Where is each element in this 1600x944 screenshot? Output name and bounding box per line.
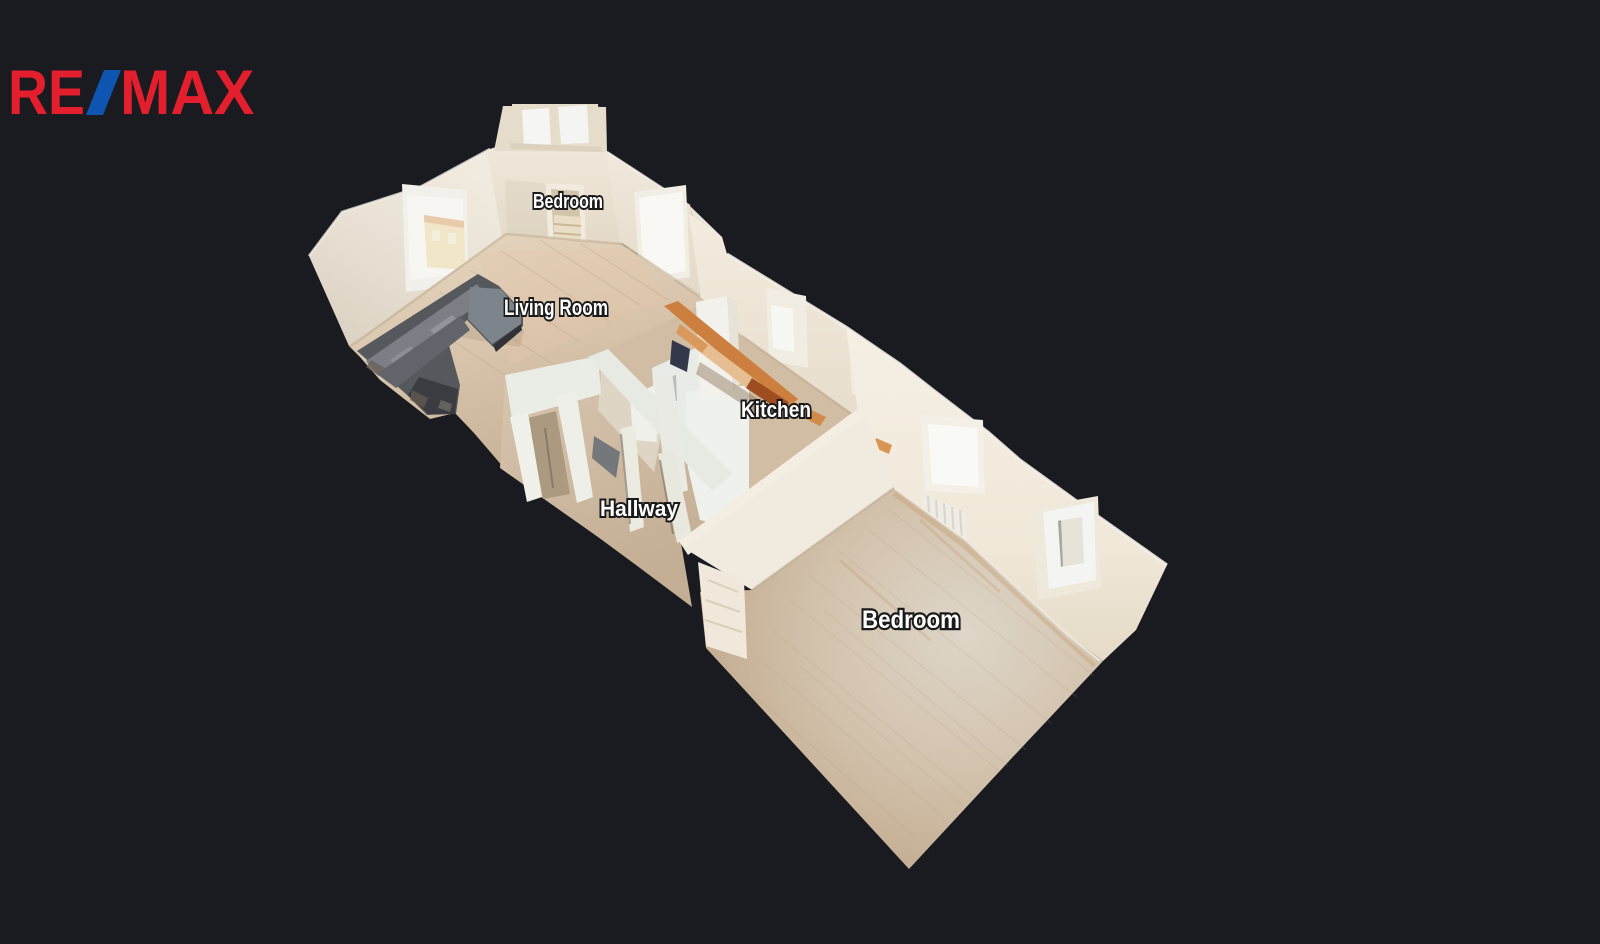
svg-text:Living Room: Living Room [504,295,608,320]
svg-text:MAX: MAX [120,58,254,128]
svg-text:Bedroom: Bedroom [533,191,603,213]
svg-text:Bedroom: Bedroom [862,606,960,634]
svg-text:Hallway: Hallway [600,496,679,521]
svg-text:Kitchen: Kitchen [741,397,811,422]
svg-text:RE: RE [8,57,85,128]
